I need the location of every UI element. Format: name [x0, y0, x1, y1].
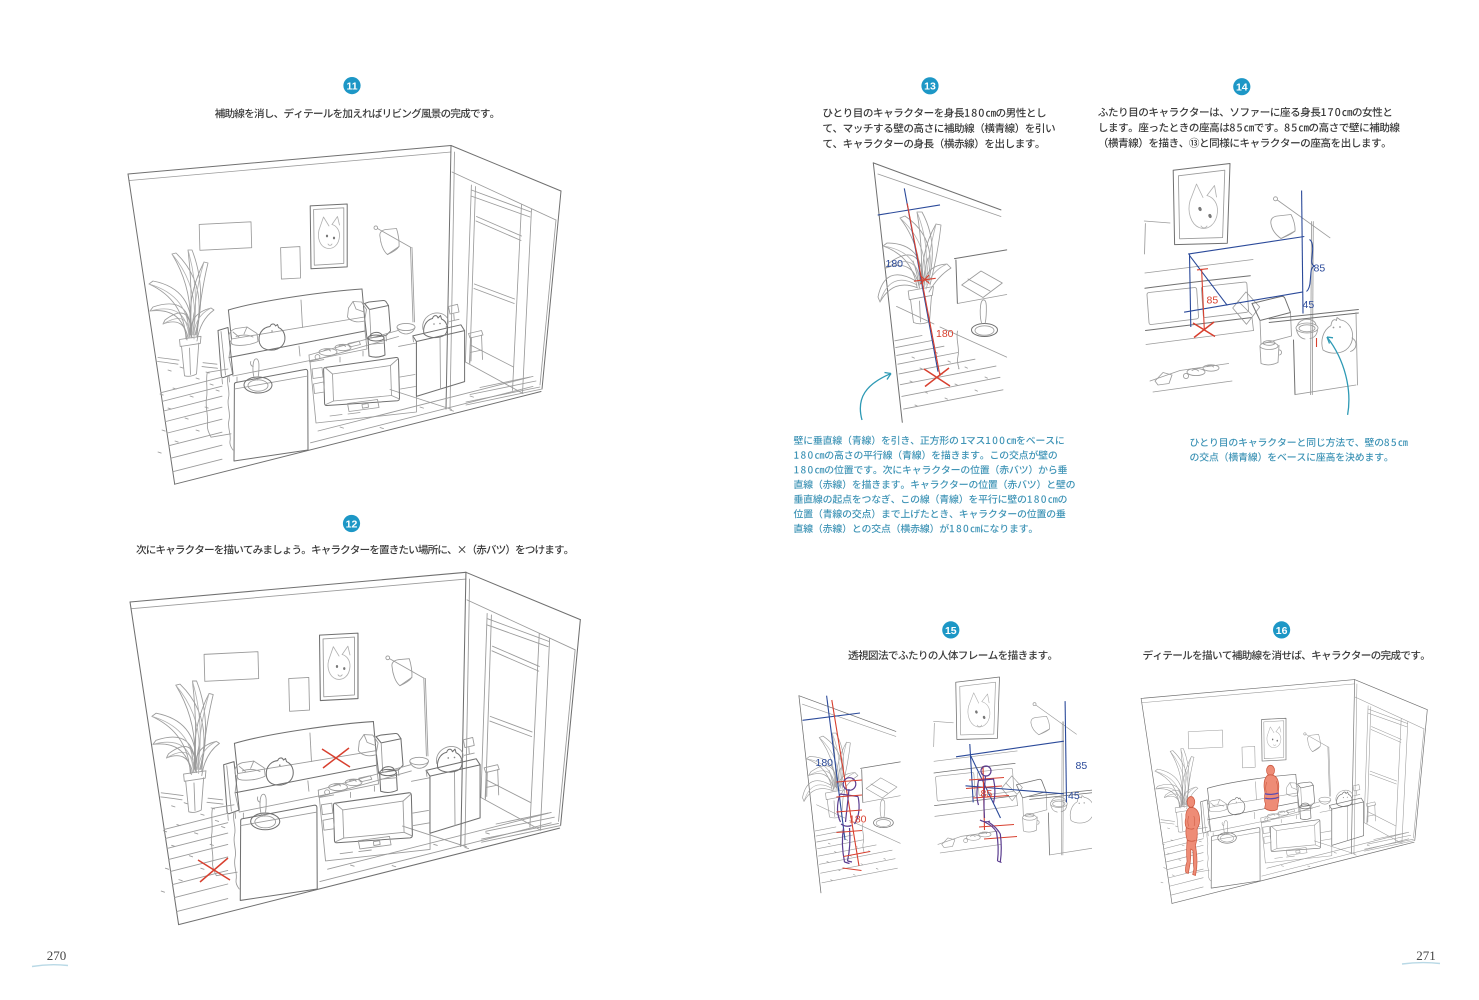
svg-text:85: 85 — [981, 788, 993, 800]
svg-text:12: 12 — [346, 518, 358, 530]
svg-text:85: 85 — [1314, 263, 1326, 275]
svg-text:271: 271 — [1416, 948, 1436, 963]
svg-text:14: 14 — [1236, 82, 1248, 94]
svg-text:11: 11 — [346, 81, 357, 93]
svg-text:13: 13 — [924, 81, 936, 93]
svg-text:16: 16 — [1276, 625, 1288, 637]
svg-text:85: 85 — [1076, 760, 1088, 772]
svg-text:45: 45 — [1068, 790, 1080, 802]
svg-text:180: 180 — [816, 757, 834, 769]
svg-text:180: 180 — [849, 814, 867, 826]
svg-text:45: 45 — [1303, 299, 1315, 311]
svg-text:15: 15 — [945, 625, 957, 637]
svg-text:180: 180 — [936, 328, 954, 340]
svg-text:270: 270 — [47, 948, 67, 963]
svg-text:85: 85 — [1207, 295, 1219, 307]
svg-text:180: 180 — [886, 258, 904, 270]
